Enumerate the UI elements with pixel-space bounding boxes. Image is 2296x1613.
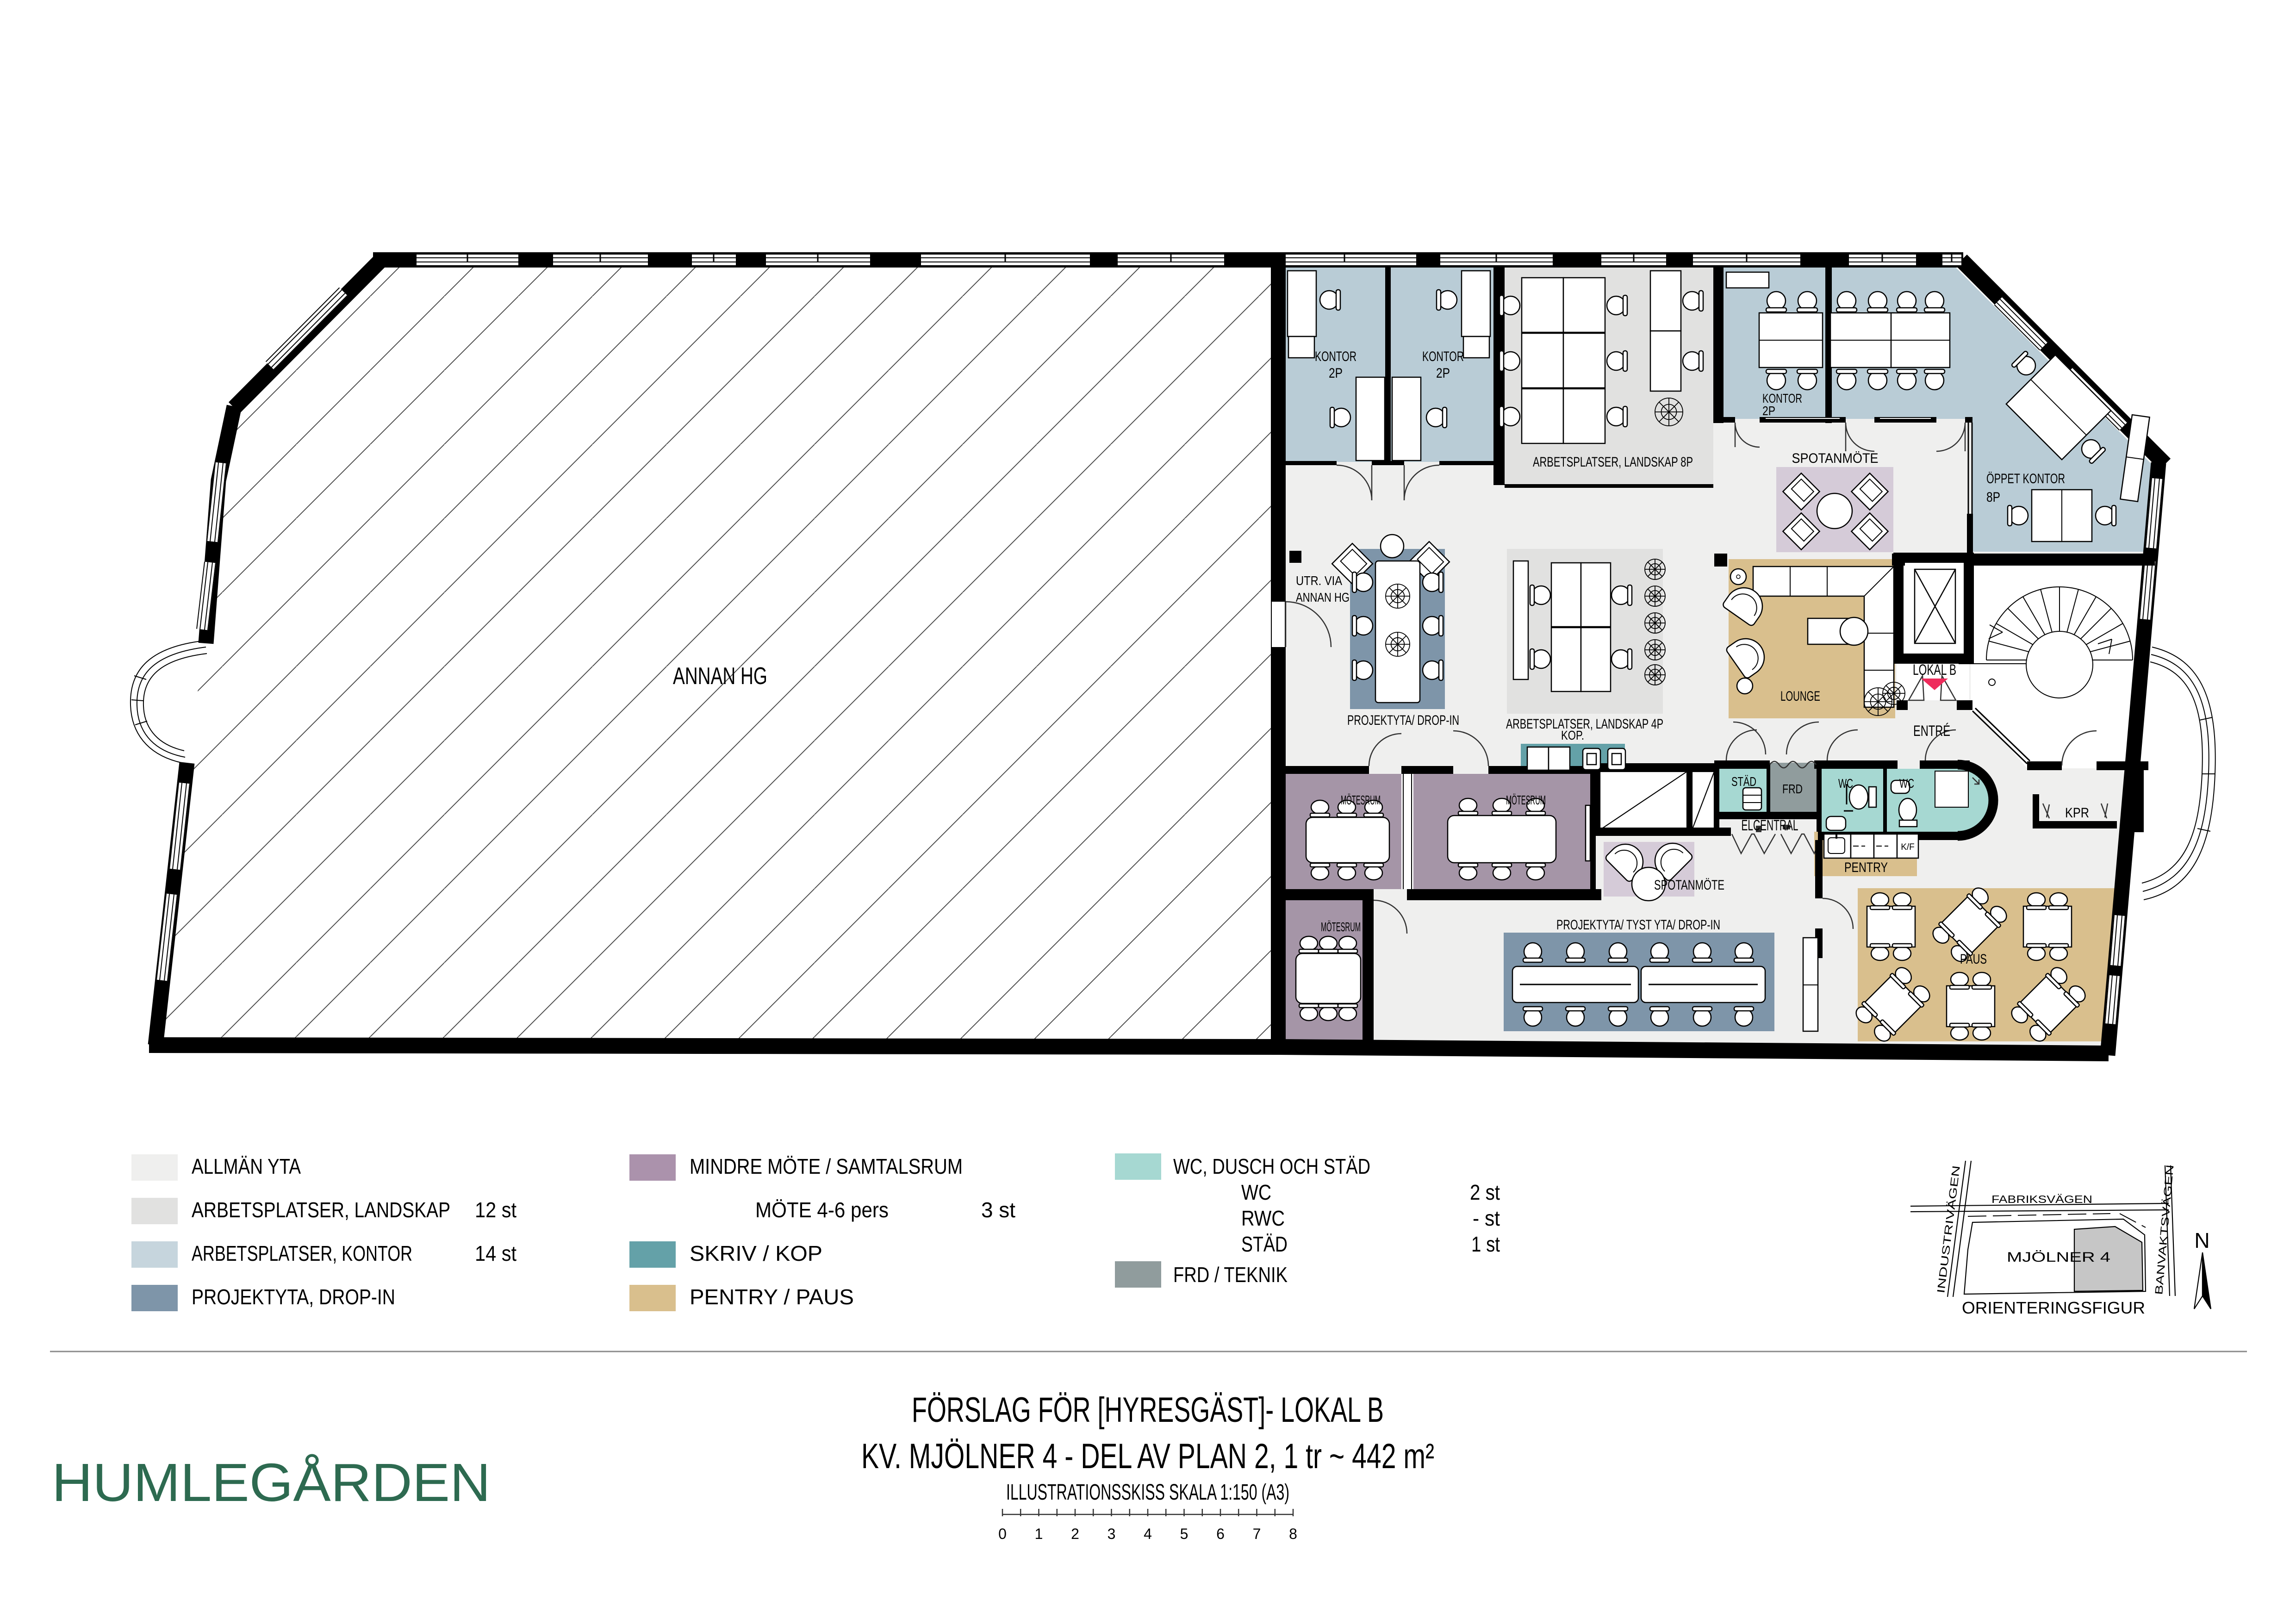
svg-text:- st: - st [1473, 1206, 1500, 1230]
svg-text:7: 7 [1253, 1526, 1261, 1542]
svg-text:FÖRSLAG FÖR [HYRESGÄST]- LOKAL: FÖRSLAG FÖR [HYRESGÄST]- LOKAL B [912, 1390, 1384, 1430]
svg-text:MÖTE 4-6 pers: MÖTE 4-6 pers [755, 1198, 889, 1222]
svg-text:MJÖLNER 4: MJÖLNER 4 [2007, 1250, 2110, 1265]
svg-text:KONTOR: KONTOR [1422, 349, 1464, 364]
svg-text:SKRIV / KOP: SKRIV / KOP [690, 1241, 822, 1265]
svg-text:WC: WC [1241, 1180, 1271, 1204]
svg-text:MÖTESRUM: MÖTESRUM [1506, 793, 1546, 807]
svg-text:MÖTESRUM: MÖTESRUM [1341, 793, 1381, 807]
svg-text:SPOTANMÖTE: SPOTANMÖTE [1654, 878, 1724, 893]
svg-text:FABRIKSVÄGEN: FABRIKSVÄGEN [1991, 1193, 2092, 1205]
svg-text:PENTRY / PAUS: PENTRY / PAUS [690, 1285, 854, 1309]
svg-text:2 st: 2 st [1470, 1180, 1500, 1204]
svg-text:FRD: FRD [1782, 782, 1803, 796]
svg-text:KPR: KPR [2065, 805, 2089, 821]
svg-text:FRD / TEKNIK: FRD / TEKNIK [1173, 1263, 1288, 1287]
svg-text:K/F: K/F [1901, 842, 1915, 852]
svg-text:6: 6 [1216, 1526, 1225, 1542]
svg-text:2P: 2P [1329, 366, 1343, 381]
svg-text:ÖPPET KONTOR: ÖPPET KONTOR [1986, 471, 2065, 486]
svg-text:KOP.: KOP. [1561, 728, 1584, 742]
svg-text:ORIENTERINGSFIGUR: ORIENTERINGSFIGUR [1962, 1298, 2145, 1317]
svg-text:2P: 2P [1436, 366, 1450, 381]
svg-text:KV. MJÖLNER 4 - DEL AV PLAN 2,: KV. MJÖLNER 4 - DEL AV PLAN 2, 1 tr ~ 44… [861, 1437, 1434, 1476]
svg-text:1 st: 1 st [1471, 1232, 1500, 1256]
svg-text:2: 2 [1071, 1526, 1079, 1542]
svg-text:2P: 2P [1762, 404, 1775, 418]
svg-text:5: 5 [1180, 1526, 1188, 1542]
svg-text:ENTRÉ: ENTRÉ [1913, 722, 1950, 739]
svg-text:ALLMÄN YTA: ALLMÄN YTA [192, 1154, 301, 1178]
svg-text:RWC: RWC [1241, 1206, 1285, 1230]
svg-text:PENTRY: PENTRY [1844, 860, 1888, 875]
svg-text:ANNAN HG: ANNAN HG [1296, 590, 1350, 604]
svg-text:14 st: 14 st [475, 1241, 516, 1265]
svg-text:STÄD: STÄD [1731, 774, 1756, 789]
svg-text:ARBETSPLATSER, LANDSKAP: ARBETSPLATSER, LANDSKAP [192, 1198, 450, 1222]
svg-text:ARBETSPLATSER, LANDSKAP 4P: ARBETSPLATSER, LANDSKAP 4P [1506, 716, 1663, 732]
svg-text:ANNAN HG: ANNAN HG [673, 663, 767, 690]
svg-text:ILLUSTRATIONSSKISS SKALA 1:150: ILLUSTRATIONSSKISS SKALA 1:150 (A3) [1006, 1480, 1289, 1505]
svg-text:ELCENTRAL: ELCENTRAL [1742, 817, 1798, 834]
svg-text:HUMLEGÅRDEN: HUMLEGÅRDEN [52, 1452, 491, 1513]
svg-text:MÖTESRUM: MÖTESRUM [1321, 920, 1361, 934]
svg-text:WC: WC [1838, 776, 1853, 791]
svg-text:STÄD: STÄD [1241, 1232, 1288, 1256]
svg-text:MINDRE MÖTE / SAMTALSRUM: MINDRE MÖTE / SAMTALSRUM [690, 1154, 963, 1178]
svg-text:WC: WC [1899, 776, 1914, 791]
svg-text:1: 1 [1035, 1526, 1043, 1542]
svg-text:12 st: 12 st [475, 1198, 516, 1222]
svg-text:PROJEKTYTA, DROP-IN: PROJEKTYTA, DROP-IN [192, 1285, 395, 1309]
svg-text:WC, DUSCH OCH STÄD: WC, DUSCH OCH STÄD [1173, 1154, 1370, 1178]
svg-text:8P: 8P [1986, 490, 2000, 505]
svg-text:ARBETSPLATSER, LANDSKAP 8P: ARBETSPLATSER, LANDSKAP 8P [1533, 455, 1693, 470]
svg-text:3: 3 [1108, 1526, 1116, 1542]
svg-text:PROJEKTYTA/ TYST YTA/ DROP-IN: PROJEKTYTA/ TYST YTA/ DROP-IN [1556, 917, 1720, 933]
svg-text:SPOTANMÖTE: SPOTANMÖTE [1792, 451, 1879, 466]
svg-text:4: 4 [1144, 1526, 1152, 1542]
svg-text:0: 0 [998, 1526, 1007, 1542]
svg-text:LOKAL B: LOKAL B [1913, 661, 1956, 678]
svg-text:ARBETSPLATSER, KONTOR: ARBETSPLATSER, KONTOR [192, 1241, 412, 1265]
svg-text:3 st: 3 st [981, 1198, 1015, 1222]
svg-text:KONTOR: KONTOR [1315, 349, 1356, 364]
svg-text:8: 8 [1289, 1526, 1297, 1542]
svg-text:PROJEKTYTA/ DROP-IN: PROJEKTYTA/ DROP-IN [1347, 713, 1459, 728]
svg-text:LOUNGE: LOUNGE [1780, 689, 1820, 704]
svg-text:UTR. VIA: UTR. VIA [1296, 573, 1342, 588]
svg-text:N: N [2194, 1228, 2209, 1252]
svg-text:PAUS: PAUS [1960, 952, 1987, 967]
